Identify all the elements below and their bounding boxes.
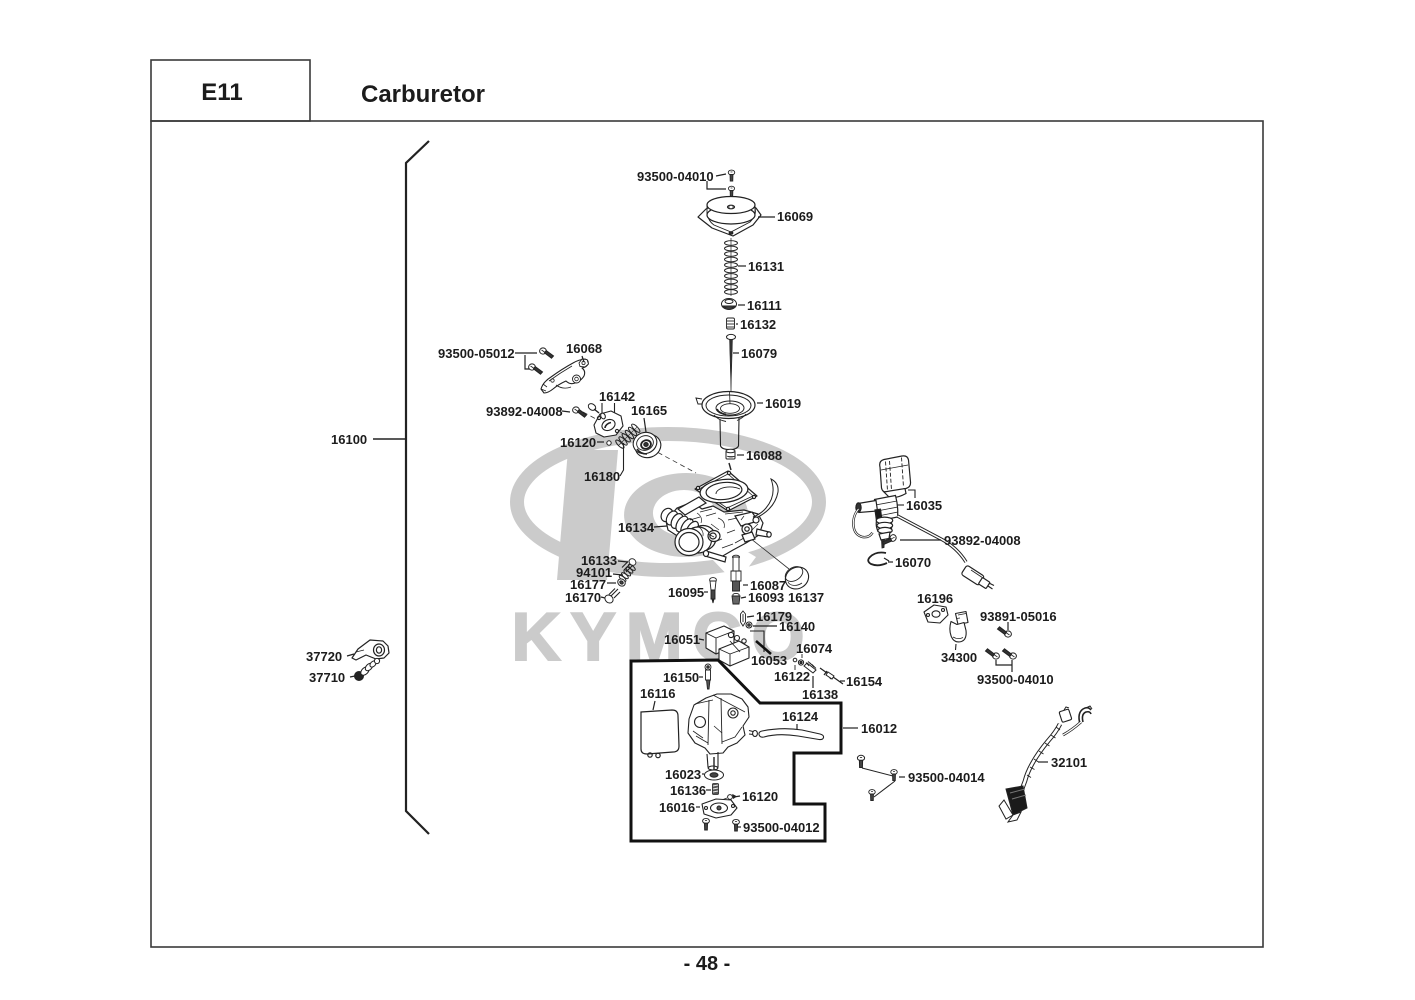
svg-text:16069: 16069 bbox=[777, 209, 813, 224]
svg-text:93500-05012: 93500-05012 bbox=[438, 346, 515, 361]
svg-text:16170: 16170 bbox=[565, 590, 601, 605]
svg-text:16196: 16196 bbox=[917, 591, 953, 606]
svg-text:93500-04014: 93500-04014 bbox=[908, 770, 985, 785]
svg-text:16100: 16100 bbox=[331, 432, 367, 447]
svg-text:93500-04010: 93500-04010 bbox=[637, 169, 714, 184]
svg-text:16035: 16035 bbox=[906, 498, 942, 513]
svg-text:16140: 16140 bbox=[779, 619, 815, 634]
svg-text:93500-04010: 93500-04010 bbox=[977, 672, 1054, 687]
svg-text:16012: 16012 bbox=[861, 721, 897, 736]
svg-text:16016: 16016 bbox=[659, 800, 695, 815]
svg-text:32101: 32101 bbox=[1051, 755, 1087, 770]
svg-text:34300: 34300 bbox=[941, 650, 977, 665]
svg-text:16116: 16116 bbox=[640, 686, 675, 701]
svg-text:16154: 16154 bbox=[846, 674, 883, 689]
svg-text:16070: 16070 bbox=[895, 555, 931, 570]
svg-text:93500-04012: 93500-04012 bbox=[743, 820, 820, 835]
svg-text:16142: 16142 bbox=[599, 389, 635, 404]
svg-text:16111: 16111 bbox=[747, 298, 782, 313]
svg-text:16019: 16019 bbox=[765, 396, 801, 411]
svg-text:16120: 16120 bbox=[560, 435, 596, 450]
svg-text:16180: 16180 bbox=[584, 469, 620, 484]
svg-text:16074: 16074 bbox=[796, 641, 833, 656]
svg-text:37710: 37710 bbox=[309, 670, 345, 685]
svg-text:16136: 16136 bbox=[670, 783, 706, 798]
svg-text:93891-05016: 93891-05016 bbox=[980, 609, 1057, 624]
svg-text:16093: 16093 bbox=[748, 590, 784, 605]
svg-text:16132: 16132 bbox=[740, 317, 776, 332]
svg-text:16095: 16095 bbox=[668, 585, 704, 600]
svg-text:16134: 16134 bbox=[618, 520, 655, 535]
svg-text:16124: 16124 bbox=[782, 709, 819, 724]
svg-text:16053: 16053 bbox=[751, 653, 787, 668]
svg-text:16150: 16150 bbox=[663, 670, 699, 685]
svg-text:16122: 16122 bbox=[774, 669, 810, 684]
svg-text:16138: 16138 bbox=[802, 687, 838, 702]
svg-text:Carburetor: Carburetor bbox=[361, 81, 485, 108]
svg-text:93892-04008: 93892-04008 bbox=[486, 404, 563, 419]
svg-text:16131: 16131 bbox=[748, 259, 784, 274]
svg-text:93892-04008: 93892-04008 bbox=[944, 533, 1021, 548]
svg-text:37720: 37720 bbox=[306, 649, 342, 664]
svg-text:16051: 16051 bbox=[664, 632, 700, 647]
svg-text:16137: 16137 bbox=[788, 590, 824, 605]
svg-text:16068: 16068 bbox=[566, 341, 602, 356]
svg-text:16120: 16120 bbox=[742, 789, 778, 804]
svg-text:16088: 16088 bbox=[746, 448, 782, 463]
svg-text:16079: 16079 bbox=[741, 346, 777, 361]
svg-text:E11: E11 bbox=[201, 79, 242, 106]
svg-text:- 48 -: - 48 - bbox=[684, 953, 731, 975]
svg-text:16023: 16023 bbox=[665, 767, 701, 782]
svg-text:16165: 16165 bbox=[631, 403, 667, 418]
